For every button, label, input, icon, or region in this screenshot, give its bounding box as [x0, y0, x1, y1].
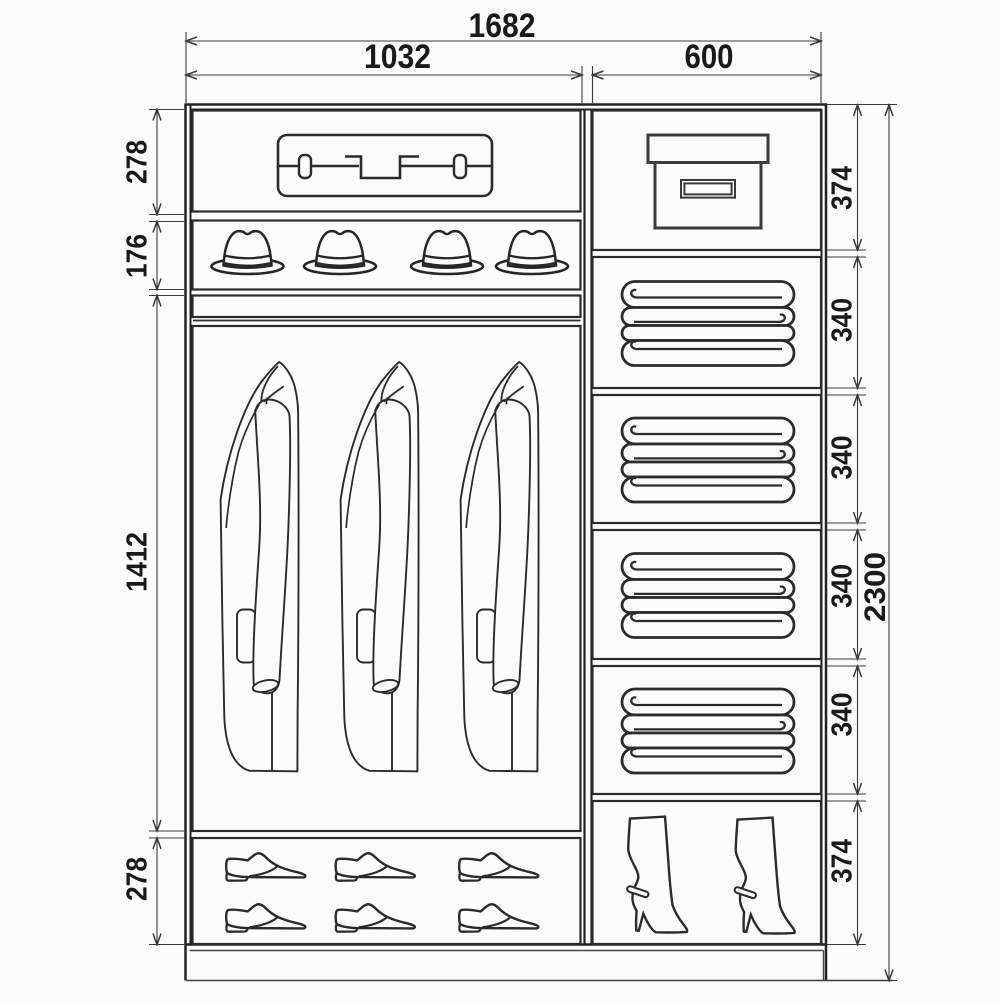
svg-text:340: 340 [827, 693, 859, 737]
svg-text:1412: 1412 [122, 532, 154, 592]
svg-text:2300: 2300 [859, 552, 892, 622]
svg-text:1682: 1682 [469, 7, 536, 45]
svg-text:1032: 1032 [364, 38, 431, 76]
svg-text:374: 374 [827, 839, 859, 883]
svg-text:340: 340 [827, 436, 859, 480]
svg-text:278: 278 [122, 140, 154, 184]
svg-text:340: 340 [827, 564, 859, 608]
svg-text:340: 340 [827, 298, 859, 342]
svg-text:374: 374 [827, 166, 859, 210]
svg-text:176: 176 [122, 234, 154, 278]
svg-text:600: 600 [685, 38, 734, 76]
svg-text:278: 278 [122, 857, 154, 901]
